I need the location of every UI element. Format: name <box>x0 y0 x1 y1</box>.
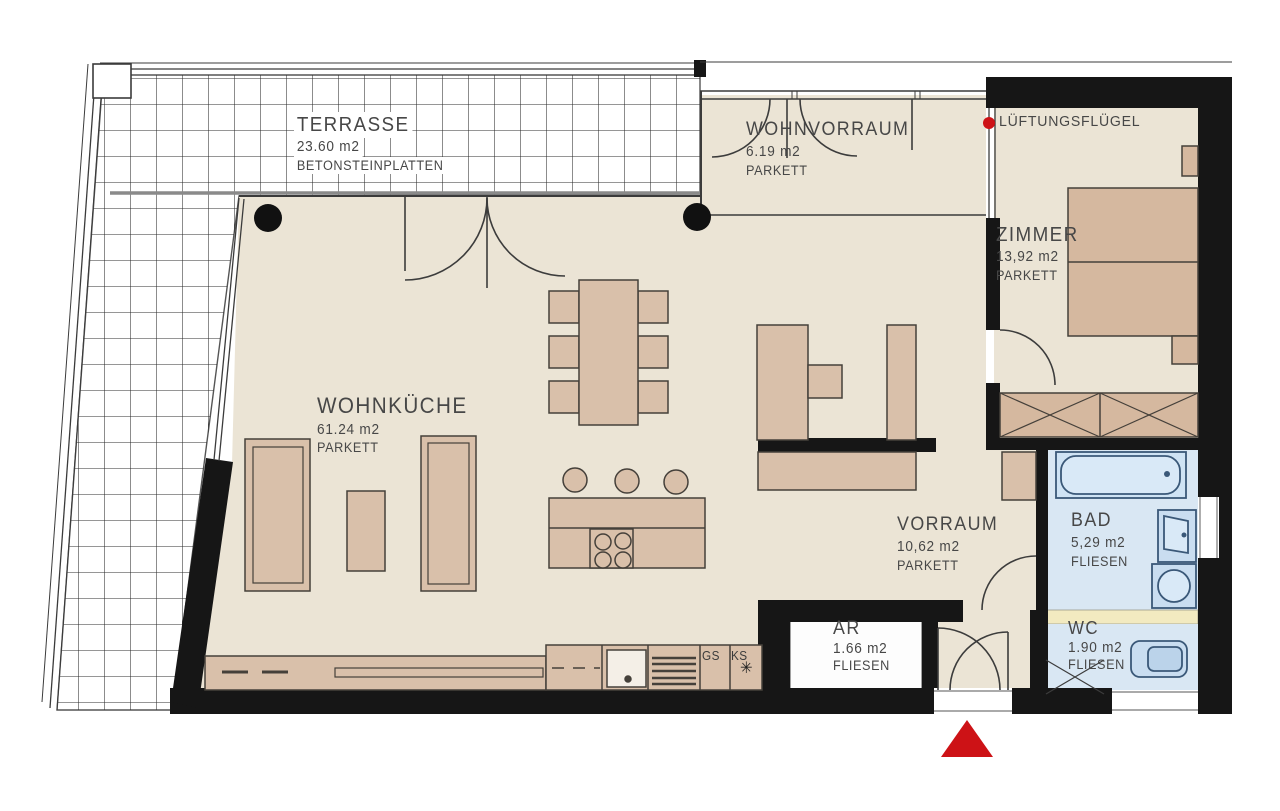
annotation-lueftungsfluegel: LÜFTUNGSFLÜGEL <box>999 113 1140 130</box>
room-label-ar: AR 1.66 m2 FLIESEN <box>833 618 890 674</box>
kitchen-island-icon <box>549 468 705 568</box>
bath-window <box>1198 497 1219 558</box>
bath-sink-icon <box>1158 510 1196 562</box>
terrace-corner-post <box>93 64 131 98</box>
room-label-wohnkueche: WOHNKÜCHE 61.24 m2 PARKETT <box>317 392 468 457</box>
toilet-icon <box>1131 641 1187 677</box>
entrance-threshold <box>934 688 1012 714</box>
stool-icon <box>563 468 587 492</box>
fridge-symbol-icon: ✳ <box>740 658 753 678</box>
washing-machine-icon <box>1152 564 1196 608</box>
room-label-vorraum: VORRAUM 10,62 m2 PARKETT <box>897 513 998 574</box>
dining-table-icon <box>549 280 668 425</box>
bathtub-icon <box>1056 452 1186 498</box>
room-label-terrasse: TERRASSE 23.60 m2 BETONSTEINPLATTEN <box>294 112 446 174</box>
sideboard-icon <box>205 656 546 690</box>
kitchen-counter-icon <box>546 645 762 690</box>
wardrobe-icon <box>1000 393 1198 437</box>
floorplan: TERRASSE 23.60 m2 BETONSTEINPLATTEN WOHN… <box>0 0 1280 811</box>
sofa-icon <box>245 439 310 591</box>
label-dishwasher-gs: GS <box>702 649 720 663</box>
room-label-wc: WC 1.90 m2 FLIESEN <box>1068 618 1125 673</box>
ventilation-dot-icon <box>983 117 995 129</box>
stool-icon <box>615 469 639 493</box>
entrance-triangle-icon <box>941 720 993 757</box>
room-label-wohnvorraum: WOHNVORRAUM 6.19 m2 PARKETT <box>746 118 909 179</box>
room-label-zimmer: ZIMMER 13,92 m2 PARKETT <box>996 222 1079 284</box>
stool-icon <box>664 470 688 494</box>
coffee-table-icon <box>347 491 385 571</box>
room-label-bad: BAD 5,29 m2 FLIESEN <box>1071 509 1128 570</box>
wc-window <box>1112 690 1198 712</box>
sofa-icon <box>421 436 476 591</box>
column-icon <box>683 203 711 231</box>
column-icon <box>254 204 282 232</box>
